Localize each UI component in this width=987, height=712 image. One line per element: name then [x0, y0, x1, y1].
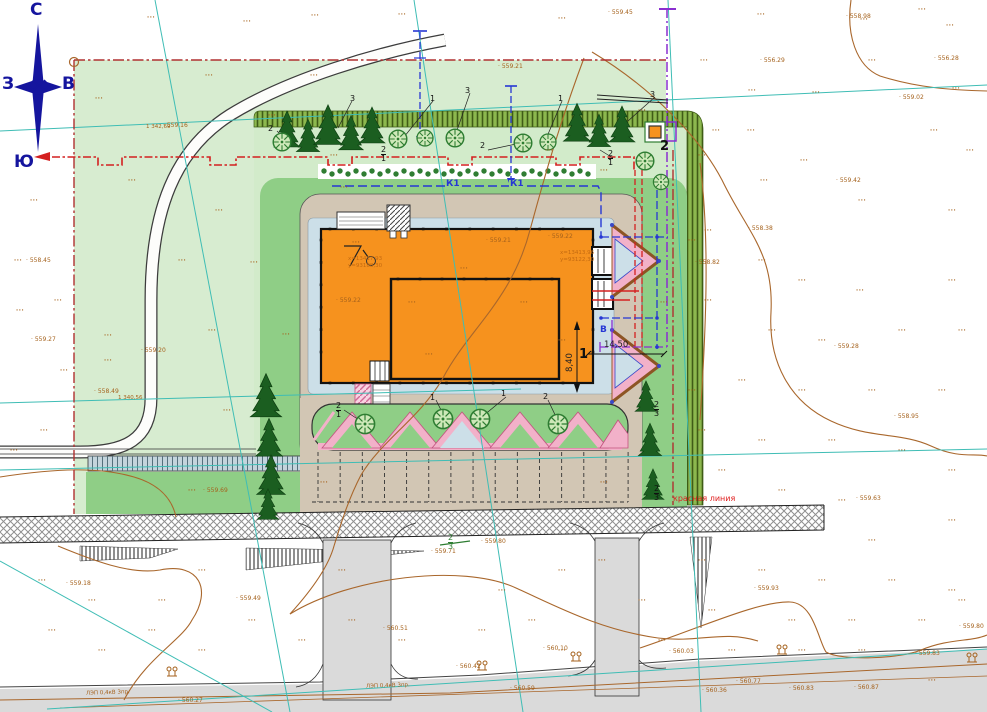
transformer-marker	[645, 122, 665, 142]
hedge-shrub	[417, 168, 422, 173]
deciduous-tree	[540, 134, 556, 150]
hedge-shrub	[377, 171, 382, 176]
deciduous-tree	[417, 130, 433, 146]
column-tick	[592, 328, 595, 331]
column-tick	[320, 351, 323, 354]
column-tick	[485, 278, 488, 281]
retaining-wall-hatch	[88, 456, 314, 471]
power-pole	[571, 652, 581, 661]
removal-strike	[440, 541, 470, 545]
hedge-shrub	[353, 168, 358, 173]
deciduous-tree	[273, 133, 291, 151]
hedge-shrub	[521, 171, 526, 176]
dock-tab-1	[390, 231, 396, 238]
column-tick	[329, 382, 332, 385]
column-tick	[538, 382, 541, 385]
column-tick	[538, 228, 541, 231]
power-pole	[477, 661, 487, 670]
column-tick	[320, 239, 323, 242]
column-tick	[592, 351, 595, 354]
dock-platform-hatch	[387, 205, 410, 231]
hedge-shrub	[465, 168, 470, 173]
column-tick	[320, 261, 323, 264]
hedge-shrub	[385, 168, 390, 173]
building-1	[321, 229, 593, 383]
hedge-shrub	[497, 168, 502, 173]
hedge-shrub	[529, 168, 534, 173]
column-tick	[515, 382, 518, 385]
deciduous-tree	[355, 414, 374, 433]
column-tick	[422, 228, 425, 231]
column-tick	[445, 382, 448, 385]
deciduous-tree	[446, 129, 464, 147]
column-tick	[592, 239, 595, 242]
column-tick	[441, 278, 444, 281]
hedge-shrub	[481, 168, 486, 173]
column-tick	[329, 228, 332, 231]
east-stair-1	[592, 247, 613, 275]
hedge-shrub	[425, 171, 430, 176]
column-tick	[551, 278, 554, 281]
hedge-shrub	[321, 168, 326, 173]
column-tick	[320, 284, 323, 287]
deciduous-tree	[514, 134, 532, 152]
column-tick	[399, 382, 402, 385]
hedge-shrub	[457, 171, 462, 176]
column-tick	[397, 278, 400, 281]
loading-ramp	[337, 212, 385, 229]
hedge-shrub	[401, 168, 406, 173]
column-tick	[562, 382, 565, 385]
hedge-shrub	[409, 171, 414, 176]
hedge-shrub	[513, 168, 518, 173]
column-tick	[492, 228, 495, 231]
deciduous-tree	[636, 152, 654, 170]
compass-rose	[14, 24, 62, 152]
hedge-strip	[318, 164, 596, 179]
east-stair-2	[592, 279, 613, 309]
deciduous-tree	[433, 409, 452, 428]
hedge-shrub	[433, 168, 438, 173]
column-tick	[320, 328, 323, 331]
deciduous-tree	[389, 130, 407, 148]
hedge-shrub	[329, 171, 334, 176]
hedge-shrub	[577, 168, 582, 173]
hedge-shrub	[449, 168, 454, 173]
deciduous-tree	[548, 414, 567, 433]
column-tick	[469, 228, 472, 231]
hedge-shrub	[553, 171, 558, 176]
deciduous-tree	[470, 409, 489, 428]
hedge-shrub	[337, 168, 342, 173]
plan-drawing	[0, 0, 987, 712]
hedge-shrub	[537, 171, 542, 176]
column-tick	[492, 382, 495, 385]
hedge-shrub	[393, 171, 398, 176]
hedge-shrub	[441, 171, 446, 176]
power-pole	[167, 667, 177, 676]
hedge-shrub	[489, 171, 494, 176]
column-tick	[422, 382, 425, 385]
column-tick	[515, 228, 518, 231]
column-tick	[469, 382, 472, 385]
south-stair	[370, 361, 389, 381]
deciduous-tree	[653, 174, 668, 189]
power-pole	[777, 645, 787, 654]
column-tick	[352, 382, 355, 385]
hedge-shrub	[473, 171, 478, 176]
column-tick	[320, 306, 323, 309]
hedge-shrub	[561, 168, 566, 173]
slope-wedge-a	[80, 546, 178, 561]
hedge-shrub	[345, 171, 350, 176]
hedge-shrub	[569, 171, 574, 176]
column-tick	[507, 278, 510, 281]
column-tick	[562, 228, 565, 231]
column-tick	[419, 278, 422, 281]
hedge-shrub	[505, 171, 510, 176]
hedge-shrub	[585, 171, 590, 176]
hedge-shrub	[361, 171, 366, 176]
column-tick	[529, 278, 532, 281]
dock-tab-2	[401, 231, 407, 238]
column-tick	[463, 278, 466, 281]
site-plan-canvas[interactable]: С З В Ю красная линия К1 К1 В 14,50 8,40…	[0, 0, 987, 712]
column-tick	[445, 228, 448, 231]
hedge-shrub	[369, 168, 374, 173]
